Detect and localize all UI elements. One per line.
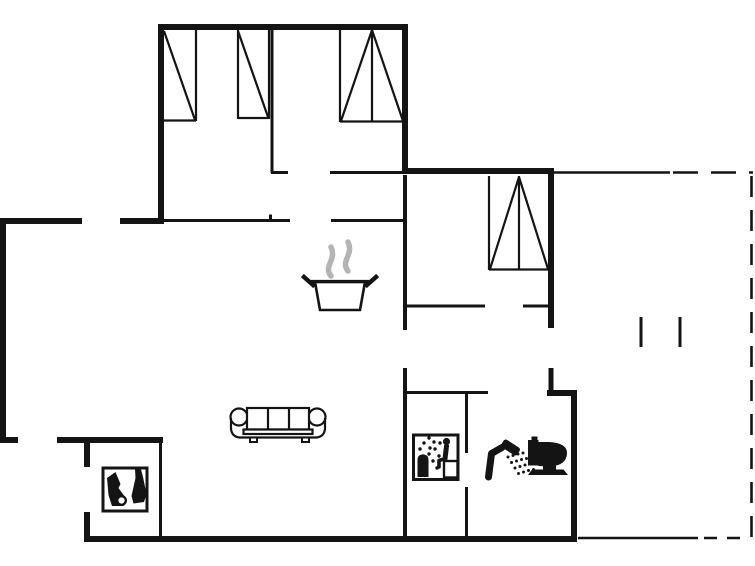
window-symbol-4 [489,176,548,270]
outer-wall-west [3,221,82,440]
cooking-pot-icon [304,242,376,310]
stove-dial [117,496,126,505]
steam-icon [328,242,349,276]
terrace-step-marks [641,317,680,347]
window-symbols [164,29,548,270]
floor-plan [0,0,755,566]
window-symbol-3 [340,29,404,122]
sauna-heater [418,455,429,478]
sauna-bench [444,461,458,478]
window-symbol-1 [164,30,196,121]
wood-stove-icon [103,468,147,512]
sauna-icon [414,435,459,480]
floor-plan-svg [0,0,755,566]
sofa-icon [231,408,326,442]
terrace-boundary [554,173,753,541]
window-symbol-2 [238,30,269,119]
